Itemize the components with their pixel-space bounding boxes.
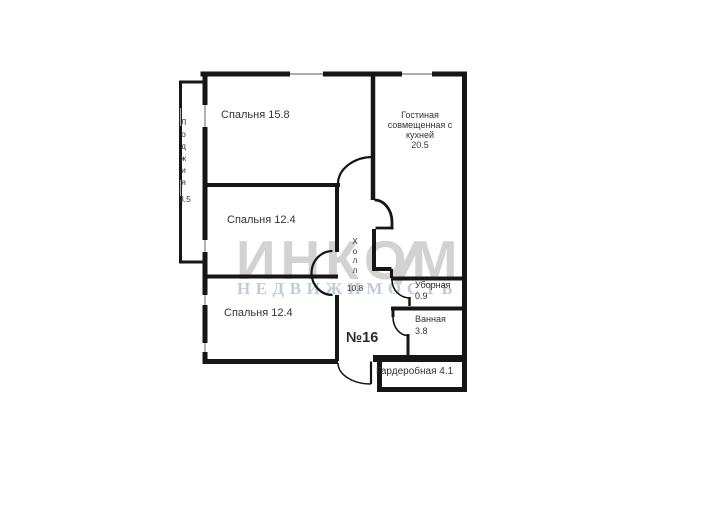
floor-plan-walls	[0, 0, 701, 526]
apartment-number: №16	[346, 330, 378, 346]
room-label-living: Гостиная совмещенная с кухней 20.5	[374, 110, 466, 150]
living-line1: Гостиная	[374, 110, 466, 120]
hall-area: 10.8	[342, 283, 368, 293]
room-label-bedroom-bottom: Спальня 12.4	[224, 307, 293, 319]
floor-plan-page: ИНКОМ НЕДВИЖИМОСТЬ	[0, 0, 701, 526]
living-line2: совмещенная с	[374, 120, 466, 130]
room-label-bedroom-top: Спальня 15.8	[221, 109, 290, 121]
room-label-wardrobe: Гардеробная 4.1	[376, 366, 453, 377]
loggia-area: 3.5	[177, 194, 193, 204]
room-label-toilet: Уборная	[415, 280, 451, 290]
bathroom-area: 3.8	[415, 326, 428, 336]
room-label-loggia: Лоджия	[180, 116, 187, 188]
room-label-bedroom-middle: Спальня 12.4	[227, 214, 296, 226]
living-area: 20.5	[374, 140, 466, 150]
toilet-area: 0.9	[415, 291, 428, 301]
living-line3: кухней	[374, 130, 466, 140]
room-label-hall: Холл	[352, 237, 358, 275]
room-label-bathroom: Ванная	[415, 314, 446, 324]
